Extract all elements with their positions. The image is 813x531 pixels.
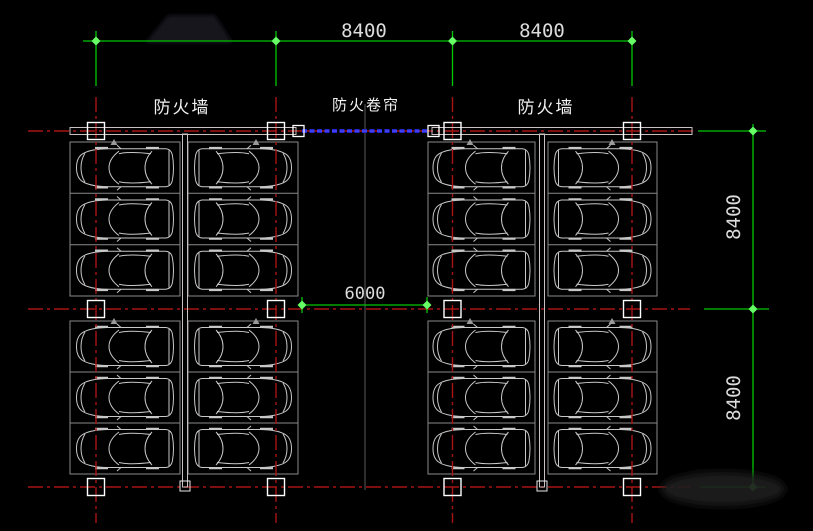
car-icon [77,145,174,190]
parking-plan-drawing: 8400 8400 6000 8400 8400 防火墙 防火卷帘 防火墙 [0,0,813,531]
car-icon [195,426,292,471]
car-icon [77,248,174,293]
car-icon [554,248,651,293]
car-icon [77,324,174,369]
cad-drawing-canvas: 8400 8400 6000 8400 8400 防火墙 防火卷帘 防火墙 [0,0,813,531]
car-icon [433,324,530,369]
stall-strip [188,321,298,474]
stall-strip [70,142,180,296]
car-icon [195,324,292,369]
car-icon [554,324,651,369]
car-icon [195,145,292,190]
car-icon [433,145,530,190]
dim-right-bay-lower: 8400 [723,375,745,421]
car-icon [195,197,292,242]
annotation-texts: 8400 8400 6000 8400 8400 防火墙 防火卷帘 防火墙 [154,20,746,421]
structural-grid-axes [28,97,695,523]
firewall-right-label: 防火墙 [518,98,575,118]
stall-strip [70,321,180,474]
car-icon [195,248,292,293]
stall-strip [188,142,298,296]
car-icon [195,375,292,420]
dim-top-bay-right: 8400 [519,20,565,42]
car-icon [77,426,174,471]
cars [77,145,652,471]
stall-strip [428,321,535,474]
dim-center-aisle: 6000 [345,284,386,304]
stall-divider-wall [183,134,188,487]
car-icon [554,426,651,471]
stall-strip [548,142,657,296]
stall-strip [548,321,657,474]
watermark-shadow-top [145,15,233,43]
stall-divider-wall [540,134,545,487]
car-icon [433,197,530,242]
dim-right-bay-upper: 8400 [723,194,745,240]
car-icon [554,375,651,420]
car-icon [77,375,174,420]
wall-end-cap [180,481,190,491]
wall-end-cap [537,481,547,491]
stall-strip [428,142,535,296]
stall-divider-lines [70,193,657,423]
dim-top-bay-left: 8400 [341,20,387,42]
car-icon [77,197,174,242]
car-icon [433,426,530,471]
car-icon [433,248,530,293]
parking-stalls [70,142,657,474]
car-icon [433,375,530,420]
fire-shutter-label: 防火卷帘 [332,96,400,114]
car-icon [554,197,651,242]
watermark-shadow-bottom [661,472,785,506]
firewall-left-label: 防火墙 [154,98,211,118]
car-icon [554,145,651,190]
